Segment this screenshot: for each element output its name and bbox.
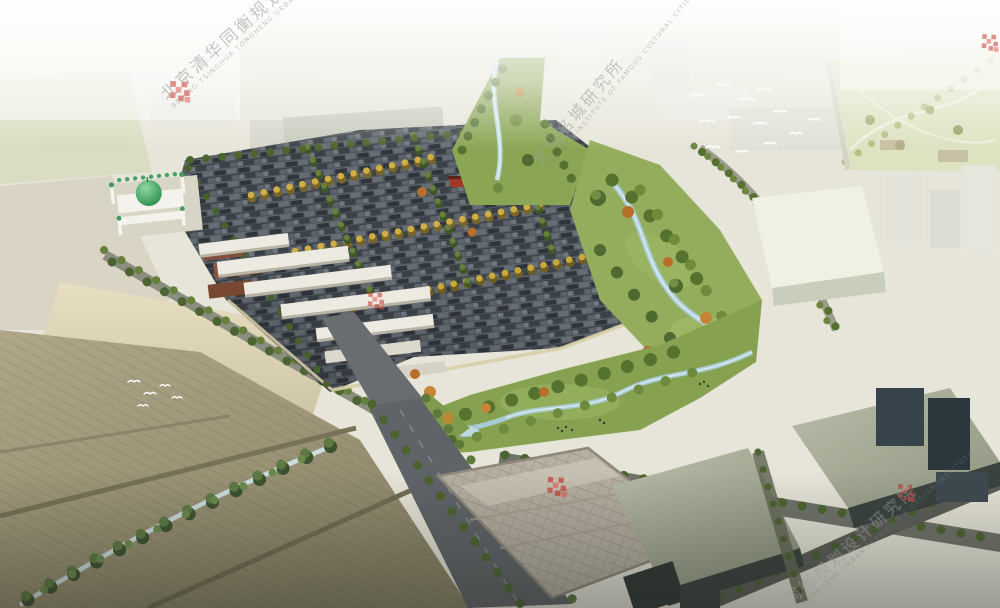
fog-topright: [840, 0, 1000, 90]
masterplan-rendering: 北京清华同衡规划设计研究院 BEIJING TSINGHUA TONGHENG …: [0, 0, 1000, 608]
vignette-bottom: [0, 470, 1000, 608]
fog-topleft: [0, 0, 240, 120]
rendered-scene: [0, 0, 1000, 608]
